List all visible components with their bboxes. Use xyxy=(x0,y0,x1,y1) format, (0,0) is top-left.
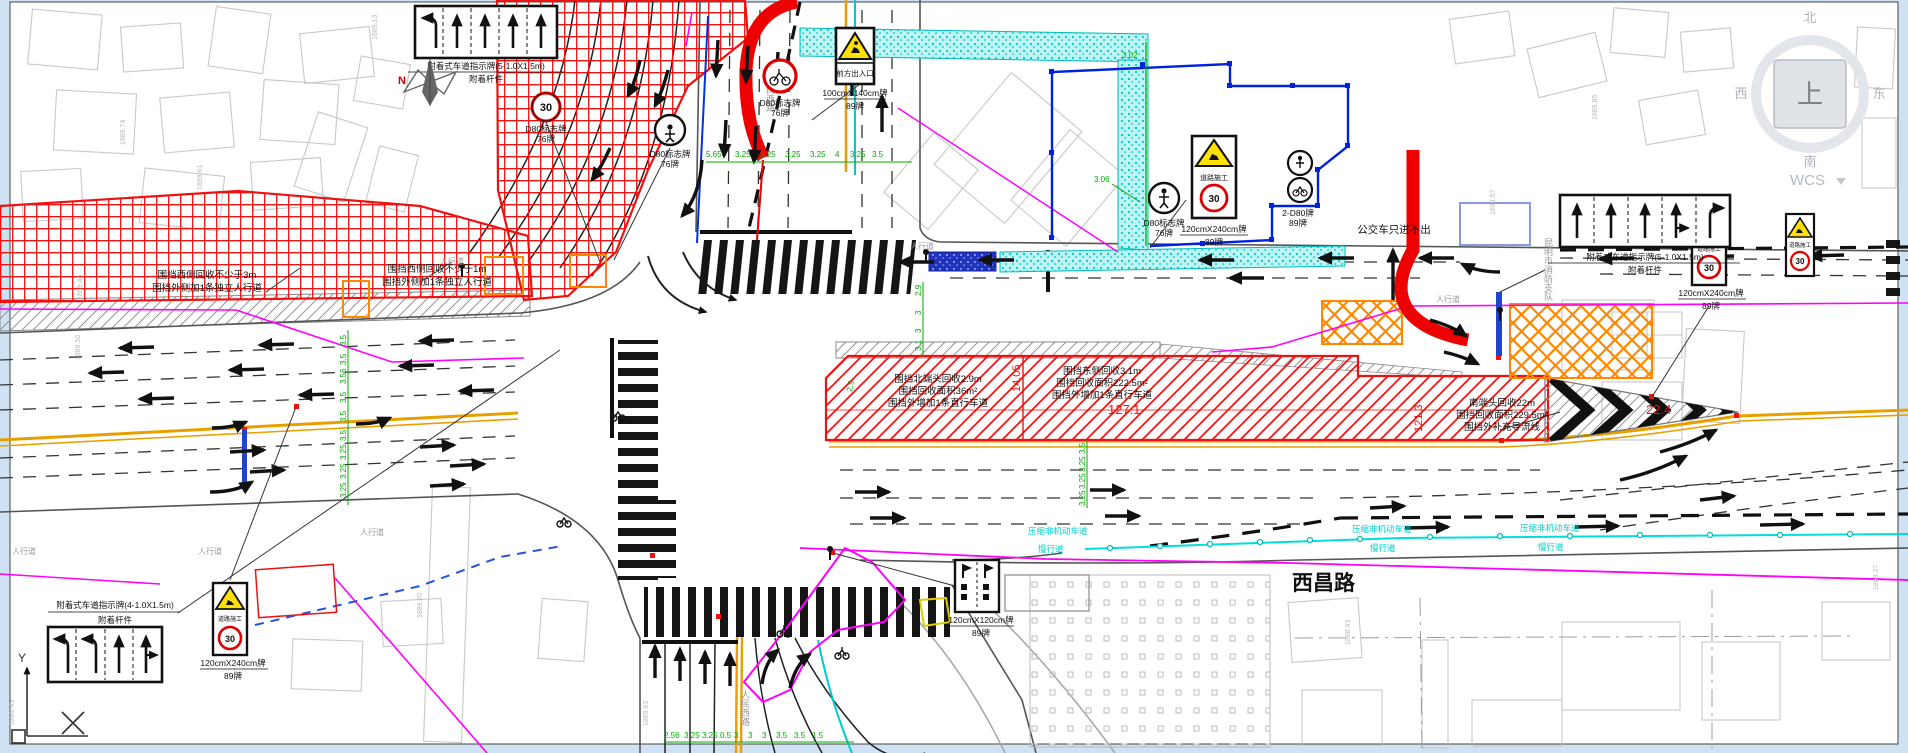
elev: 1889.37 xyxy=(1873,565,1880,590)
dim: 2.9 xyxy=(914,284,923,296)
speed-30-text: 30 xyxy=(1796,257,1805,266)
elev: 1889.20 xyxy=(417,593,424,618)
elev: 1889.50 xyxy=(75,335,82,360)
count-89: 89牌 xyxy=(1289,218,1307,228)
sidewalk-label-5: 人行道 xyxy=(198,546,222,556)
zone-label-east-2: 围挡回收面积222.5m² xyxy=(1056,377,1148,389)
speed-30-text: 30 xyxy=(1704,263,1714,273)
d80x2-label: 2-D80牌 xyxy=(1282,208,1314,218)
d80-label: D80标志牌 xyxy=(525,124,567,134)
bike-label-a1: 压缩非机动车道 xyxy=(1028,526,1088,536)
dim: 3.25 xyxy=(1078,490,1087,506)
dim: 3.5 xyxy=(872,150,884,159)
dim: 3.25 xyxy=(684,731,700,740)
dim-red-d: 22.4 xyxy=(1646,402,1671,417)
zone-label-east-3: 围挡外增加1条直行车道 xyxy=(1052,389,1153,401)
dim: 1.5 xyxy=(812,731,824,740)
dim-302: 3.02 xyxy=(1122,51,1138,60)
dim: 3.25 xyxy=(339,482,348,498)
plaza-dotted xyxy=(1030,575,1270,747)
sign-2d80: 2-D80牌 89牌 xyxy=(1282,151,1314,228)
viewcube-west[interactable]: 西 xyxy=(1734,86,1747,101)
orange-crosshatch-2 xyxy=(1510,304,1652,378)
dim: 3.5 xyxy=(794,731,806,740)
count-89: 89牌 xyxy=(1205,237,1223,247)
dim: 3.25 xyxy=(339,444,348,460)
bike-label-b2: 慢行道 xyxy=(1370,543,1396,553)
dim: 5.65 xyxy=(706,150,722,159)
sidewalk-label-2: 人行道 xyxy=(910,241,934,251)
dim: 3.25 xyxy=(850,150,866,159)
speed-30-text: 30 xyxy=(540,102,552,114)
count-89: 89牌 xyxy=(846,101,864,111)
dim: 3.5 xyxy=(339,353,348,365)
dim: 3.56 xyxy=(339,368,348,384)
work-plate-text: 道路施工 xyxy=(1789,241,1812,249)
sidewalk-label-4: 人行道 xyxy=(12,546,36,556)
elev: 1889.45 xyxy=(9,700,16,725)
zone-label-south-3: 围挡外补充导流线 xyxy=(1464,421,1541,433)
size-120x240: 120cmX240cm牌 xyxy=(1181,224,1247,234)
d80-label: D80标志牌 xyxy=(759,98,801,108)
dim: 4 xyxy=(835,150,840,159)
wcs-label[interactable]: WCS xyxy=(1790,172,1825,189)
d80-label: D80标志牌 xyxy=(1143,218,1185,228)
dim: 3.25 xyxy=(702,731,718,740)
dim: 3.5 xyxy=(339,334,348,346)
dim: 3 xyxy=(914,310,923,315)
dim: 3.1 xyxy=(914,339,923,351)
zone-label-north-1: 围挡北端头回收2.9m xyxy=(894,373,982,385)
viewcube-up-label: 上 xyxy=(1797,79,1823,109)
d80-count: 76牌 xyxy=(661,159,679,169)
board-ne-pole: 附着杆件 xyxy=(1628,265,1663,275)
dim: 3.25 xyxy=(1078,473,1087,489)
cad-viewport: 围挡西侧回收不少于3m 围挡外侧加1条独立人行道 围挡西侧回收不少于1m 围挡外… xyxy=(0,0,1908,753)
d80-label: D80标志牌 xyxy=(649,149,691,159)
sign-assembly-east2: 道路施工 30 xyxy=(1786,214,1814,276)
dim: 3 xyxy=(748,731,753,740)
dim: 3.25 xyxy=(760,150,776,159)
d80-count: 76牌 xyxy=(537,134,555,144)
dim: 3.25 xyxy=(810,150,826,159)
zone-label-west-a-2: 围挡外侧加1条独立人行道 xyxy=(152,282,262,294)
count-89: 89牌 xyxy=(224,671,242,681)
dim: 3 xyxy=(914,328,923,333)
road-name-renmin-south: 人民西路 xyxy=(740,690,750,727)
viewcube-east[interactable]: 东 xyxy=(1872,86,1885,101)
sidewalk-label-1: 人行道 xyxy=(440,256,464,266)
count-89: 89牌 xyxy=(1702,301,1720,311)
blue-pole-west xyxy=(242,430,247,488)
d80-count: 76牌 xyxy=(771,108,789,118)
viewcube-north[interactable]: 北 xyxy=(1803,10,1816,25)
zone-label-west-b-1: 围挡西侧回收不少于1m xyxy=(388,263,487,275)
dim-306: 3.06 xyxy=(1094,175,1110,184)
board-ne-label: 附着式车道指示牌(5-1.0X1.5m) xyxy=(1586,252,1704,262)
elev: 1889.61 xyxy=(197,165,204,190)
size-120x120: 120cmX120cm牌 xyxy=(948,615,1014,625)
dim: 3 xyxy=(762,731,767,740)
dim-red-c: 121.3 xyxy=(1413,404,1425,432)
zone-label-west-a-1: 围挡西侧回收不少于3m xyxy=(158,269,257,281)
bike-label-b3: 慢行道 xyxy=(1538,542,1564,552)
dim: 3.5 xyxy=(339,391,348,403)
dim: 3.25 xyxy=(735,150,751,159)
speed-30-text: 30 xyxy=(1208,194,1220,205)
elev: 1889.46 xyxy=(77,275,84,300)
dim: 3.5 xyxy=(776,731,788,740)
d80-count: 76牌 xyxy=(1155,228,1173,238)
lane-board-ne: 附着式车道指示牌(5-1.0X1.5m) 附着杆件 xyxy=(1548,195,1740,275)
zone-label-east-1: 围挡东侧回收3.1m xyxy=(1063,365,1141,377)
dim: 0.5 xyxy=(720,731,732,740)
road-name-xichang: 西昌路 xyxy=(1292,571,1356,595)
board-sw-label: 附着式车道指示牌(4-1.0X1.5m) xyxy=(56,600,174,610)
elev: 1889.13 xyxy=(372,15,379,40)
bike-label-a3: 压缩非机动车道 xyxy=(1520,523,1580,533)
viewcube-south[interactable]: 南 xyxy=(1803,154,1816,169)
fire-station-label: 昆明市消防支队 xyxy=(1543,238,1553,302)
lane-board-sw: 附着式车道指示牌(4-1.0X1.5m) 附着杆件 xyxy=(48,600,180,682)
elev: 1889.63 xyxy=(643,701,650,726)
elev: 1889.74 xyxy=(120,120,127,145)
dim: 3.5 xyxy=(339,429,348,441)
dim: 3.5 xyxy=(339,410,348,422)
blue-pole-east xyxy=(1496,292,1502,356)
speed-30-text: 30 xyxy=(225,634,235,644)
size-120x240: 120cmX240cm牌 xyxy=(200,658,266,668)
entrance-plate-text: 前方出入口 xyxy=(836,68,874,78)
board-sw-pole: 附着杆件 xyxy=(98,615,133,625)
work-plate-text: 道路施工 xyxy=(1200,173,1228,182)
size-120x240: 120cmX240cm牌 xyxy=(1678,288,1744,298)
dim: 2.56 xyxy=(664,731,680,740)
count-89: 89牌 xyxy=(972,628,990,638)
drawing-canvas: 围挡西侧回收不少于3m 围挡外侧加1条独立人行道 围挡西侧回收不少于1m 围挡外… xyxy=(0,0,1908,753)
elev: 1889.57 xyxy=(1490,190,1497,215)
bus-note: 公交车只进不出 xyxy=(1357,223,1431,236)
north-letter: N xyxy=(398,75,406,87)
dim: 3.25 xyxy=(339,463,348,479)
dim: 3.25 xyxy=(785,150,801,159)
zone-label-south-2: 围挡回收面积229.5m² xyxy=(1456,409,1548,421)
zone-label-north-3: 围挡外增加1条直行车道 xyxy=(888,397,989,409)
size-100x140: 100cmX140cm牌 xyxy=(822,88,888,98)
zone-label-west-b-2: 围挡外侧加1条独立人行道 xyxy=(382,276,492,288)
dim: 3.25 xyxy=(1078,456,1087,472)
dim: 3 xyxy=(734,731,739,740)
zone-label-south-1: 南端头回收22m xyxy=(1469,397,1535,409)
orange-crosshatch-1 xyxy=(1322,301,1402,344)
board-nw-label: 附着式车道指示牌(5-1.0X1.5m) xyxy=(427,61,545,71)
dim: 3.5 xyxy=(1078,442,1087,454)
bike-label-a2: 压缩非机动车道 xyxy=(1352,524,1412,534)
sidewalk-label-3: 人行道 xyxy=(1436,294,1460,304)
dim-red-b: 127.1 xyxy=(1108,402,1141,417)
elev: 1889.85 xyxy=(1592,95,1599,120)
work-plate-text: 道路施工 xyxy=(218,615,242,623)
bike-label-b1: 慢行道 xyxy=(1038,544,1064,554)
ucs-y-label: Y xyxy=(18,651,26,665)
sidewalk-label-6: 人行道 xyxy=(360,527,384,537)
zone-label-north-2: 围挡回收面积36m² xyxy=(899,385,978,397)
board-nw-pole: 附着杆件 xyxy=(469,74,504,84)
elev: 1888.43 xyxy=(1345,620,1352,645)
dim-red-a: 14.05 xyxy=(1011,364,1023,392)
